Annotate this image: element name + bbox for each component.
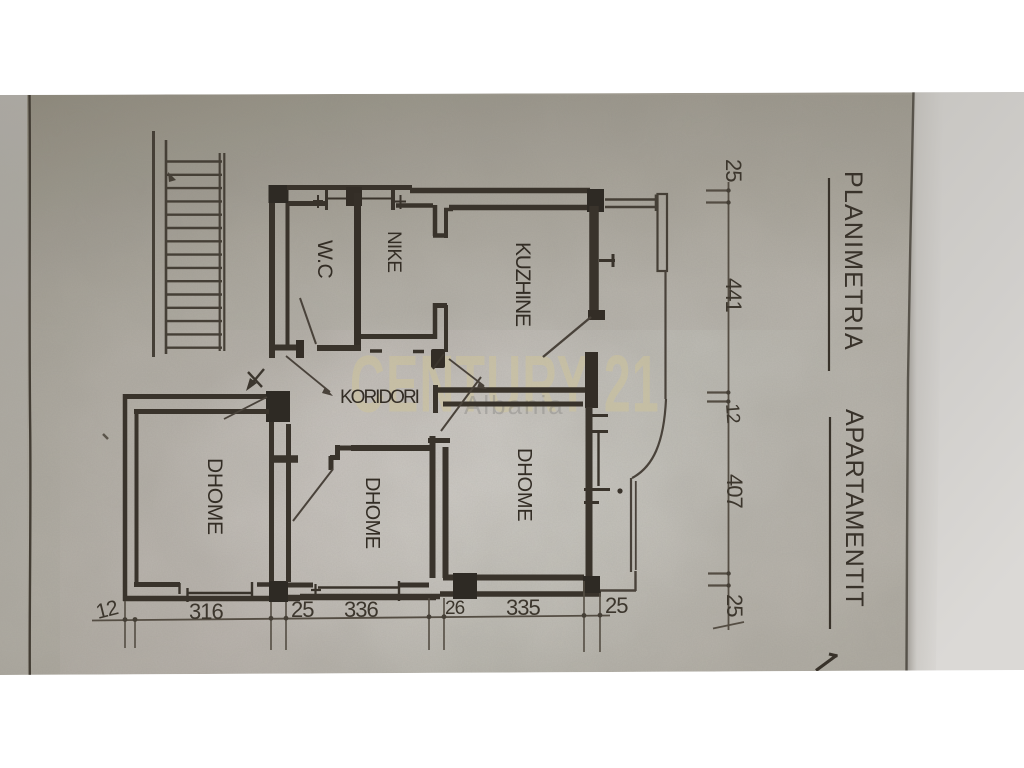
svg-text:407: 407 <box>722 474 747 508</box>
svg-text:12: 12 <box>721 403 743 424</box>
svg-text:DHOME: DHOME <box>361 477 383 549</box>
svg-text:25: 25 <box>291 597 314 622</box>
svg-text:KORIDORI: KORIDORI <box>340 387 419 408</box>
svg-text:DHOME: DHOME <box>203 458 226 535</box>
svg-text:NIKE: NIKE <box>383 231 404 272</box>
svg-text:336: 336 <box>344 597 378 622</box>
svg-text:316: 316 <box>189 599 223 624</box>
svg-text:26: 26 <box>445 598 465 619</box>
svg-text:441: 441 <box>721 278 746 312</box>
svg-text:W.C: W.C <box>313 240 336 278</box>
svg-text:PLANIMETRIA: PLANIMETRIA <box>839 171 867 351</box>
svg-text:DHOME: DHOME <box>513 448 535 521</box>
svg-text:APARTAMENTIT: APARTAMENTIT <box>840 409 868 608</box>
svg-text:25: 25 <box>605 593 628 618</box>
svg-text:335: 335 <box>506 595 540 620</box>
svg-text:KUZHINE: KUZHINE <box>511 242 534 327</box>
svg-text:25: 25 <box>722 594 747 617</box>
svg-text:25: 25 <box>721 159 746 182</box>
